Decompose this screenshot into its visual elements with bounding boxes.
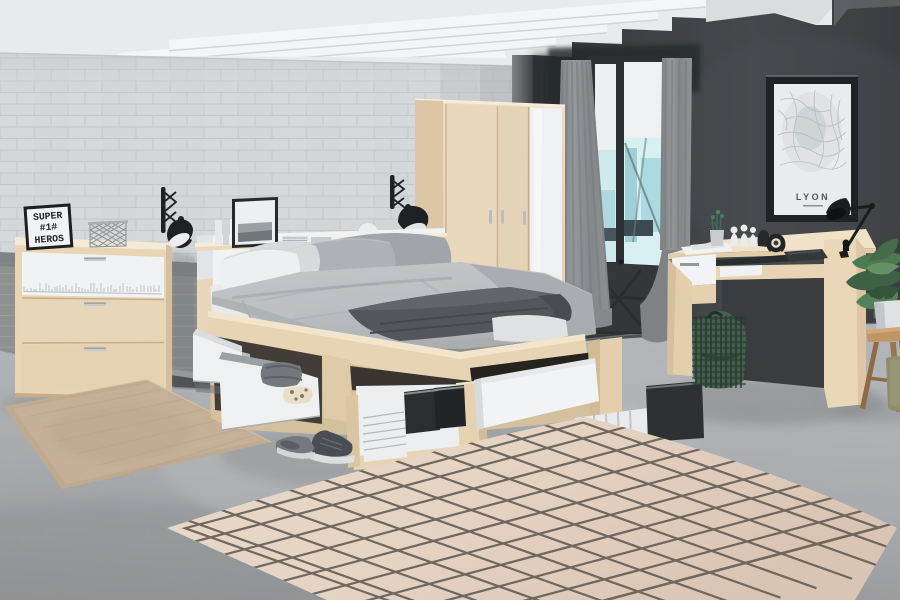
svg-text:HEROS: HEROS — [34, 233, 64, 246]
svg-text:#1#: #1# — [39, 221, 57, 233]
svg-text:LYON: LYON — [796, 192, 830, 202]
